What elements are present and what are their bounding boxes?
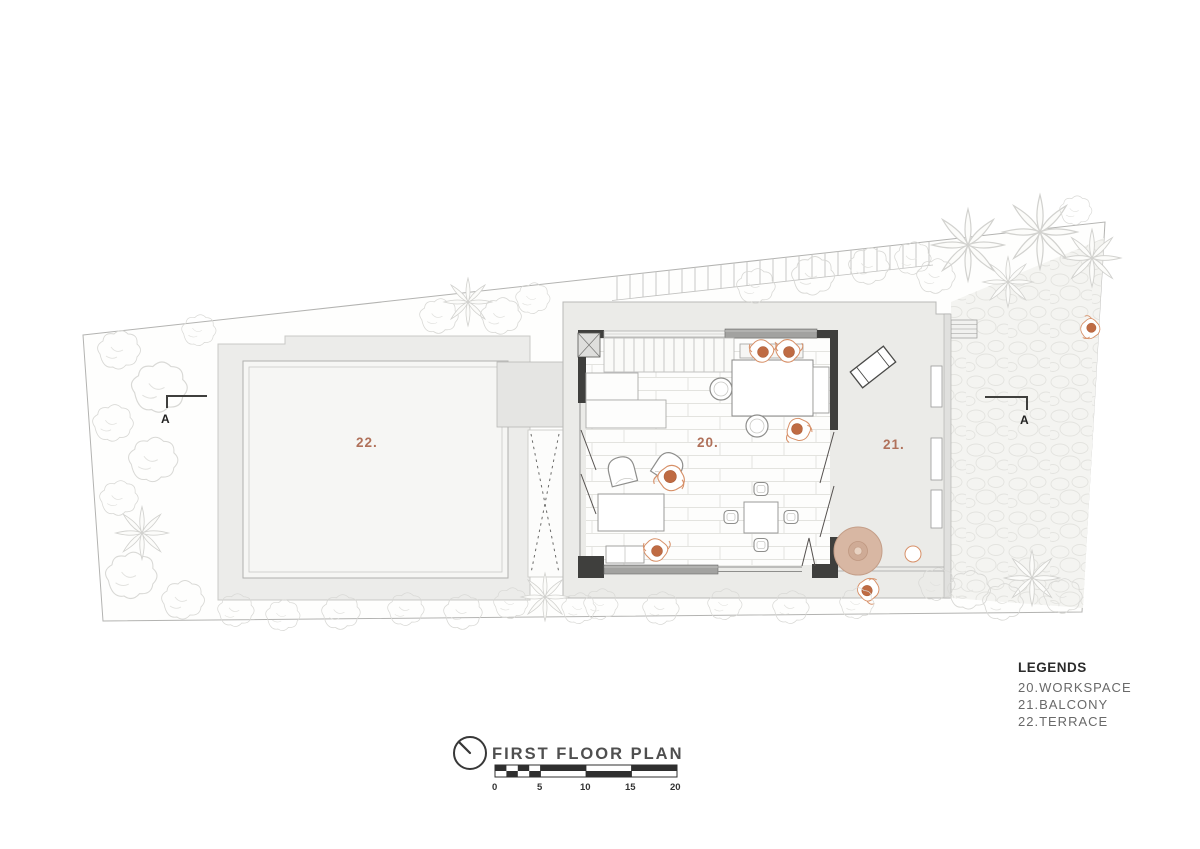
scale-tick-15: 15 <box>625 782 636 793</box>
balcony-slot-window-3 <box>931 490 942 528</box>
terrace-deck <box>243 361 508 578</box>
north-indicator <box>454 737 486 769</box>
label-workspace: 20. <box>697 435 719 450</box>
legend-panel: LEGENDS 20.WORKSPACE 21.BALCONY 22.TERRA… <box>1018 660 1132 729</box>
chair-round-2 <box>746 415 768 437</box>
floor-plan-sheet: A A 22. 20. 21. FIRST FLOOR PLAN 0 5 10 … <box>0 0 1200 849</box>
section-letter-right: A <box>1020 413 1029 427</box>
label-balcony: 21. <box>883 437 905 452</box>
legend-item-terrace: 22.TERRACE <box>1018 714 1108 729</box>
label-terrace: 22. <box>356 435 378 450</box>
scale-tick-0: 0 <box>492 782 497 793</box>
legend-item-workspace: 20.WORKSPACE <box>1018 680 1132 695</box>
scale-tick-20: 20 <box>670 782 681 793</box>
balcony-slot-window-2 <box>931 438 942 480</box>
garden-steps <box>951 320 977 338</box>
desk-side-unit <box>813 367 829 413</box>
meeting-chair-right <box>784 511 798 524</box>
legend-item-balcony: 21.BALCONY <box>1018 697 1108 712</box>
link-bridge <box>497 362 565 427</box>
scale-tick-10: 10 <box>580 782 591 793</box>
scale-bar: 0 5 10 15 20 <box>492 765 681 793</box>
page-title: FIRST FLOOR PLAN <box>492 745 684 763</box>
meeting-chair-bottom <box>754 539 768 552</box>
balcony-chair <box>905 546 921 562</box>
desk-large <box>732 360 813 416</box>
chair-round-1 <box>710 378 732 400</box>
balcony-slot-windows <box>931 366 942 528</box>
floor-plan-drawing: A A 22. 20. 21. FIRST FLOOR PLAN 0 5 10 … <box>0 0 1200 849</box>
scale-tick-5: 5 <box>537 782 543 793</box>
stairs <box>604 338 734 372</box>
balcony-slot-window-1 <box>931 366 942 407</box>
balcony-round-table <box>834 527 882 575</box>
lounge-table <box>598 494 664 531</box>
legend-heading: LEGENDS <box>1018 660 1087 675</box>
meeting-chair-left <box>724 511 738 524</box>
section-letter-left: A <box>161 412 170 426</box>
meeting-table <box>744 502 778 533</box>
meeting-chair-top <box>754 483 768 496</box>
void-corridor <box>528 430 563 577</box>
bench-seat <box>606 546 644 563</box>
